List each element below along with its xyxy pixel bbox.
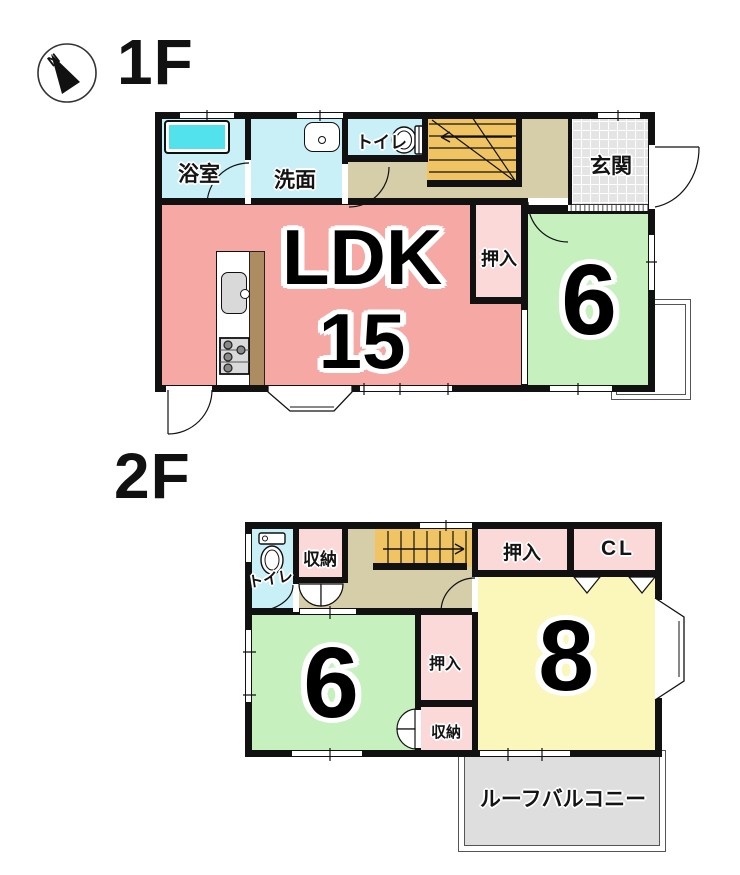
bathtub-icon: [164, 120, 230, 154]
window: [360, 385, 452, 392]
kitchen-faucet: [240, 289, 250, 299]
wall: [155, 198, 568, 205]
wall: [373, 563, 467, 570]
door-opening: [342, 164, 348, 204]
window: [648, 235, 655, 290]
sliding-door: [300, 608, 356, 615]
cl-label: CL: [601, 537, 635, 561]
room8-size: 8: [506, 606, 626, 706]
window: [245, 534, 252, 562]
floor1-title: 1F: [117, 30, 194, 94]
washbasin-faucet: [318, 136, 326, 144]
storage-lower-label: 収納: [431, 721, 461, 742]
washroom-label: 洗面: [274, 164, 316, 194]
closet-middle-label: 押入: [429, 650, 461, 674]
toilet-1f-label: トイレ: [356, 128, 407, 153]
window: [180, 112, 234, 119]
entrance-door-opening: [648, 145, 655, 209]
window: [420, 522, 472, 529]
stairs-2f: [375, 529, 475, 567]
kitchen-sink-icon: [221, 272, 247, 314]
room6-1f-size: 6: [529, 250, 649, 350]
wall: [415, 608, 421, 710]
wall: [472, 570, 662, 577]
wall: [470, 297, 528, 304]
wall: [568, 112, 572, 205]
washbasin-icon: [304, 122, 340, 152]
window: [292, 750, 362, 757]
bay-window-opening: [655, 600, 662, 698]
wall: [342, 155, 428, 162]
entrance-label: 玄関: [590, 150, 632, 180]
door-opening: [166, 385, 212, 392]
wall: [245, 608, 478, 615]
wall: [472, 522, 478, 577]
wall: [427, 180, 522, 187]
sliding-door: [521, 310, 528, 384]
floor2-title: 2F: [114, 444, 191, 508]
door-opening: [293, 584, 299, 612]
bath-label: 浴室: [178, 158, 220, 188]
wall: [516, 112, 522, 187]
door-opening: [528, 198, 568, 205]
storage-upper-label: 収納: [303, 545, 337, 570]
bay-window-opening: [268, 385, 352, 392]
door-opening: [472, 577, 478, 612]
wall: [415, 700, 478, 707]
closet-1f-label: 押入: [481, 245, 517, 271]
door-arc-entrance: [655, 147, 699, 207]
window: [598, 112, 640, 119]
window: [245, 630, 252, 702]
window: [550, 385, 612, 392]
closet-upper-label: 押入: [503, 538, 541, 565]
balcony-door: [480, 750, 570, 757]
wall: [297, 577, 348, 583]
roof-balcony-label: ルーフバルコニー: [470, 783, 656, 813]
wall: [342, 522, 348, 579]
wall: [525, 211, 655, 214]
wall: [472, 612, 478, 757]
stove-icon: [219, 337, 250, 375]
floor-plan-canvas: N 1F 2F: [0, 0, 740, 875]
door-arc-ldk-exterior: [168, 390, 212, 434]
compass-icon: N: [34, 40, 100, 106]
wall: [155, 112, 162, 392]
ldk-label: LDK: [252, 218, 472, 296]
stairs-1f: [427, 112, 522, 187]
room6-2f-size: 6: [271, 633, 391, 733]
wall: [567, 522, 574, 577]
wall: [415, 748, 421, 757]
ldk-size-label: 15: [252, 302, 472, 380]
door-opening: [245, 160, 251, 204]
window: [297, 112, 343, 119]
